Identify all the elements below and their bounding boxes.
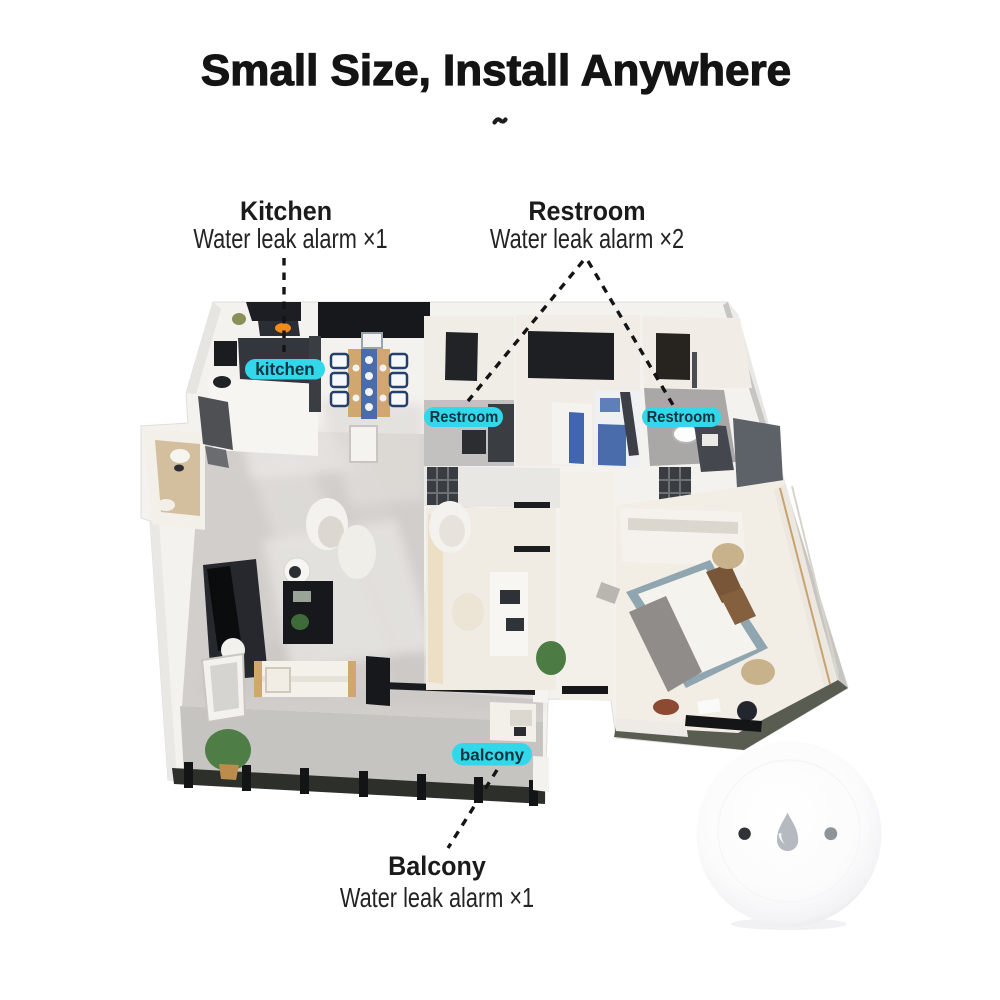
svg-text:Restroom: Restroom — [647, 409, 716, 426]
svg-text:kitchen: kitchen — [255, 359, 314, 379]
svg-text:balcony: balcony — [460, 746, 525, 765]
svg-text:Restroom: Restroom — [430, 409, 499, 426]
